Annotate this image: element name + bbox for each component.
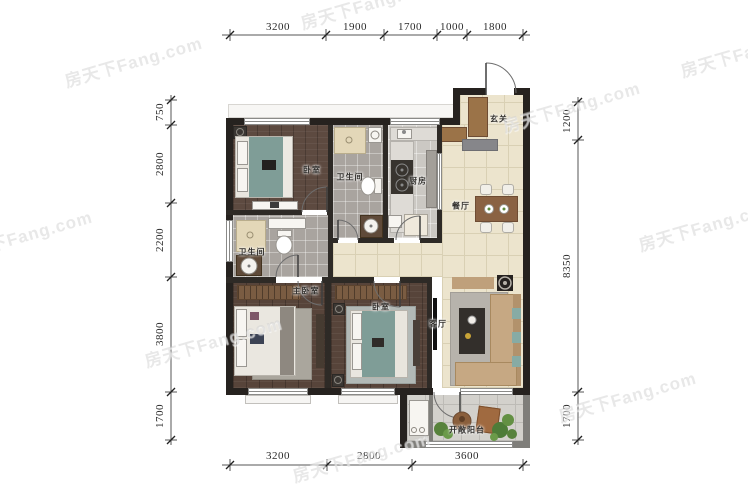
room-label-bedroom-top: 卧室: [303, 165, 321, 176]
bed-throw-navy: [250, 334, 264, 344]
dim-bottom-2: 2800: [357, 450, 381, 462]
sofa-pillow-teal: [512, 356, 521, 367]
bed-throw: [262, 160, 276, 170]
dim-bottom-3: 3600: [455, 450, 479, 462]
watermark: 房天下Fang.com: [0, 203, 95, 266]
window-balcony-railing: [425, 441, 513, 448]
ac-unit-bedroom-bottom-2: [332, 374, 344, 387]
shower-tray: [334, 127, 366, 154]
dining-table: [475, 196, 518, 222]
wall-kitchen-dining-a: [437, 125, 442, 153]
room-label-dining: 餐厅: [452, 201, 470, 212]
shoe-cabinet-vertical: [468, 97, 488, 137]
window-master: [248, 388, 308, 395]
coffee-table: [459, 308, 485, 354]
wall-utility: [429, 395, 433, 441]
exterior-ledge: [228, 104, 455, 118]
window-bedroom-top: [244, 118, 310, 125]
room-label-bath-top: 卫生间: [337, 172, 364, 183]
window-bath-left: [226, 220, 233, 262]
pillow: [237, 168, 248, 192]
sill-bedroom-bottom: [338, 395, 398, 404]
tv-cabinet-master: [316, 314, 324, 368]
desk-bedroom-bottom: [413, 320, 420, 366]
washing-machine: [368, 127, 382, 143]
ac-unit-bedroom-bottom: [333, 303, 345, 315]
pillow: [236, 339, 247, 367]
bed-runner-master: [280, 307, 294, 375]
wall-bath-kitchen: [383, 125, 388, 238]
dishwasher: [388, 215, 402, 228]
dim-top-5: 1800: [483, 21, 507, 33]
wall-balcony-top-right: [513, 388, 530, 395]
pillow: [352, 313, 362, 340]
fridge: [404, 214, 428, 236]
window-kitchen: [390, 118, 440, 125]
sofa-pillow-teal: [512, 308, 521, 319]
dim-right-1: 1200: [561, 109, 573, 133]
watermark: 房天下Fang.com: [555, 364, 699, 427]
wardrobe-master: [237, 285, 301, 300]
dim-right-2: 8350: [561, 254, 573, 278]
wall-balcony-right: [523, 395, 530, 448]
cushion-purple: [250, 312, 259, 320]
sill-master: [245, 395, 311, 404]
bed-throw-2: [372, 338, 384, 347]
speaker-box: [497, 275, 513, 291]
bath-shelf: [268, 218, 306, 229]
dim-top-3: 1700: [398, 21, 422, 33]
wall-under-bath-a: [333, 238, 338, 243]
pillow: [352, 343, 362, 370]
dim-left-5: 1700: [154, 404, 166, 428]
sofa-chaise: [455, 362, 517, 386]
room-label-master: 主卧室: [293, 286, 320, 297]
wall-bedroom2-living: [427, 283, 432, 388]
kitchen-sink: [397, 129, 412, 139]
wall-kitchen-dining-b: [437, 210, 442, 238]
dim-bottom-1: 3200: [266, 450, 290, 462]
desk-monitor: [270, 202, 279, 208]
toilet-tank: [374, 178, 382, 194]
dim-left-3: 2200: [154, 228, 166, 252]
room-label-bedroom-bottom: 卧室: [372, 302, 390, 313]
watermark: 房天下Fang.com: [635, 193, 748, 256]
dining-chair: [502, 184, 514, 195]
pillow: [237, 141, 248, 165]
dim-left-4: 3800: [154, 322, 166, 346]
vanity-counter-2: [236, 255, 262, 276]
dim-top-1: 3200: [266, 21, 290, 33]
wall-balcony-top-left: [413, 388, 433, 395]
pillow: [236, 309, 247, 337]
wall-mid-a: [226, 277, 276, 283]
room-label-kitchen: 厨房: [409, 176, 427, 187]
window-bedroom-bottom: [341, 388, 395, 395]
wall-under-bath-b: [358, 238, 394, 243]
bed-runner: [283, 137, 292, 197]
wall-bedroom-top-bottom: [226, 210, 302, 215]
watermark: 房天下Fang.com: [677, 19, 748, 82]
vanity-counter: [360, 215, 383, 238]
room-label-balcony: 开敞阳台: [449, 425, 485, 436]
room-label-living: 客厅: [429, 319, 447, 330]
console-cabinet: [452, 277, 494, 289]
entry-mat: [462, 139, 498, 151]
room-label-bath-left: 卫生间: [239, 247, 266, 258]
glass-slider-kitchen: [437, 153, 442, 210]
wall-bath-left-right: [328, 215, 333, 277]
water-heater: [409, 400, 429, 436]
floorplan-image: 卧室 卫生间 厨房 玄关 餐厅 卫生间 主卧室 卧室 客厅 开敞阳台 3200 …: [0, 0, 748, 499]
room-label-entry: 玄关: [490, 114, 508, 125]
dim-left-1: 750: [154, 103, 166, 121]
sofa-pillow-teal: [512, 332, 521, 343]
toilet-tank-2: [277, 230, 292, 237]
wall-entry-top-left: [453, 88, 486, 95]
dim-top-2: 1900: [343, 21, 367, 33]
dining-chair: [502, 222, 514, 233]
bed-runner-2: [395, 311, 406, 377]
dim-right-3: 1700: [561, 404, 573, 428]
pantry-unit: [426, 150, 437, 208]
wardrobe-bedroom-bottom: [335, 285, 407, 300]
window-living-balcony: [460, 388, 513, 395]
dining-chair: [480, 184, 492, 195]
wall-balcony-left: [400, 392, 407, 448]
wall-master-bedroom2: [325, 283, 331, 388]
dining-chair: [480, 222, 492, 233]
floor-corridor: [333, 243, 442, 277]
dim-left-2: 2800: [154, 152, 166, 176]
wall-right: [523, 88, 530, 395]
watermark: 房天下Fang.com: [61, 29, 205, 92]
dim-top-4: 1000: [440, 21, 464, 33]
wall-under-kitchen: [420, 238, 442, 243]
